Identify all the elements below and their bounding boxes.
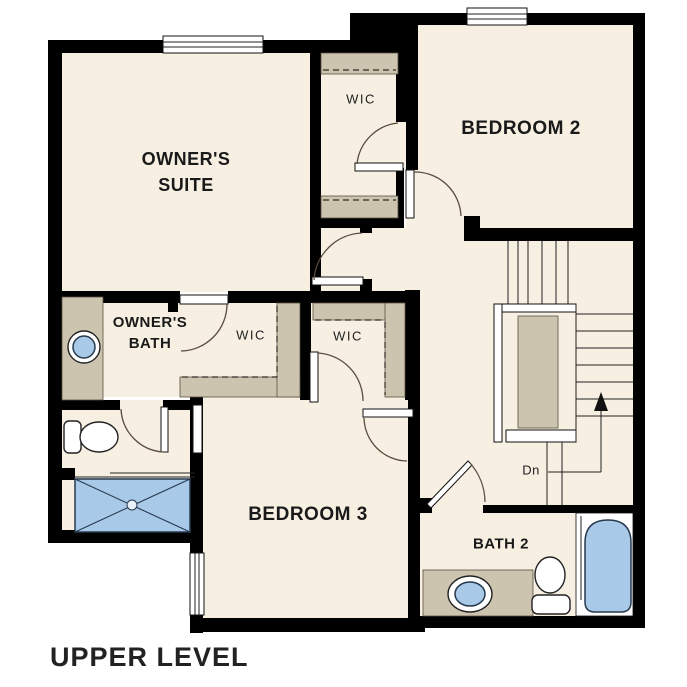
owners-suite-label: OWNER'S SUITE	[142, 146, 231, 198]
bedroom2-label: BEDROOM 2	[461, 118, 581, 140]
wic-middle-label: WIC	[236, 328, 266, 343]
owners-suite-window	[163, 36, 263, 53]
vestibule-door	[312, 277, 363, 285]
wic-top-label: WIC	[346, 92, 376, 107]
wic-right-door	[310, 352, 318, 402]
shower-drain	[127, 500, 137, 510]
floor-plan-page: OWNER'S SUITE WIC BEDROOM 2 OWNER'S BATH…	[0, 0, 687, 687]
toilet-room-door	[161, 407, 168, 452]
wic-right-shelf-right	[385, 303, 405, 397]
owners-bath-toilet-tank	[64, 421, 81, 453]
stair-rail-top	[494, 304, 576, 312]
stairs-down-label: Dn	[522, 463, 540, 478]
floor-plan-drawing	[0, 0, 687, 687]
stair-landing-wall	[518, 316, 558, 428]
wic-top-door	[355, 163, 403, 171]
wic-top-shelf-upper	[321, 53, 398, 74]
bedroom3-window	[190, 553, 204, 615]
bath2-toilet-bowl	[535, 557, 565, 593]
wic-right-label: WIC	[333, 329, 363, 344]
stair-rail-bottom	[506, 430, 576, 442]
bedroom2-window	[467, 8, 527, 25]
wic-middle-shelf-right	[277, 303, 300, 397]
wic-top-floor	[321, 50, 398, 218]
plan-title: UPPER LEVEL	[50, 642, 249, 673]
stair-rail-left	[494, 304, 502, 442]
bedroom3-door	[363, 409, 413, 417]
wic-top-shelf-lower	[321, 196, 398, 218]
bathtub	[585, 520, 631, 612]
owners-bath-label: OWNER'S BATH	[113, 312, 188, 354]
bath2-toilet-tank	[532, 595, 570, 614]
owners-bath-door	[180, 295, 228, 304]
owners-bath-toilet-bowl	[80, 422, 118, 452]
bedroom3-label: BEDROOM 3	[248, 504, 368, 526]
toilet-room-opening-frame	[193, 405, 202, 453]
bedroom2-door	[406, 170, 414, 218]
bath2-label: BATH 2	[473, 534, 529, 555]
